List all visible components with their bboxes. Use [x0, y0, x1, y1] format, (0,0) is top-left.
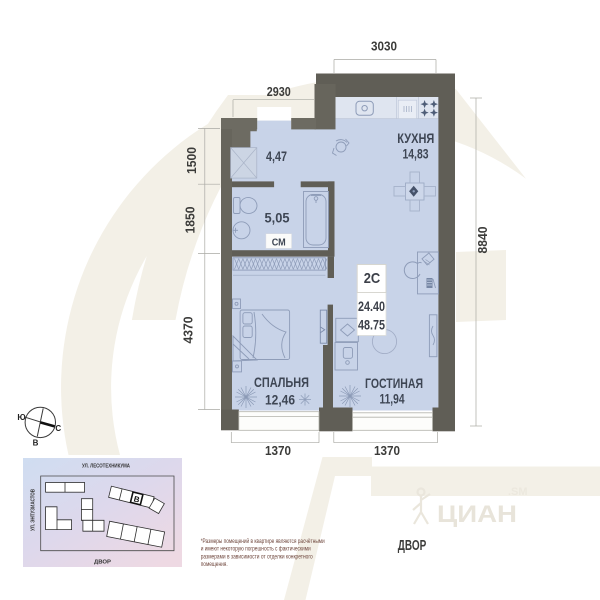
svg-text:1370: 1370: [374, 444, 400, 458]
svg-text:ЦИАН: ЦИАН: [437, 501, 517, 528]
svg-text:2С: 2С: [364, 270, 381, 287]
svg-text:2930: 2930: [267, 84, 291, 99]
svg-text:УЛ. ЭНТУЗИАСТОВ: УЛ. ЭНТУЗИАСТОВ: [31, 489, 37, 531]
svg-text:ДВОР: ДВОР: [398, 538, 427, 554]
svg-text:В: В: [33, 439, 39, 448]
svg-text:11,94: 11,94: [380, 391, 405, 407]
svg-text:КУХНЯ: КУХНЯ: [397, 130, 434, 146]
svg-text:ГОСТИНАЯ: ГОСТИНАЯ: [365, 375, 423, 391]
svg-text:*Размеры помещений в квартире: *Размеры помещений в квартире являются р…: [201, 537, 325, 545]
svg-text:8840: 8840: [475, 227, 490, 254]
svg-text:48.75: 48.75: [358, 317, 385, 333]
svg-text:Ю: Ю: [17, 413, 25, 422]
svg-text:24.40: 24.40: [358, 298, 385, 314]
svg-text:УЛ. ЛЕСОТЕХНИКУМА: УЛ. ЛЕСОТЕХНИКУМА: [82, 464, 130, 470]
svg-text:размерами в зависимости от отд: размерами в зависимости от отделки конкр…: [201, 553, 313, 560]
svg-text:помещения.: помещения.: [201, 561, 228, 568]
svg-text:1850: 1850: [183, 207, 198, 234]
svg-text:4370: 4370: [181, 317, 196, 344]
svg-text:СМ: СМ: [272, 238, 286, 249]
svg-text:3030: 3030: [371, 39, 397, 54]
svg-text:1500: 1500: [184, 147, 199, 174]
svg-text:12,46: 12,46: [265, 392, 295, 408]
svg-text:С: С: [55, 424, 61, 433]
svg-text:14,83: 14,83: [403, 146, 429, 162]
svg-text:4,47: 4,47: [266, 148, 287, 164]
svg-text:.SM: .SM: [508, 486, 528, 498]
svg-text:ДВОР: ДВОР: [94, 560, 111, 566]
svg-text:1370: 1370: [265, 444, 291, 458]
svg-text:СПАЛЬНЯ: СПАЛЬНЯ: [254, 374, 309, 390]
svg-text:5,05: 5,05: [265, 210, 290, 226]
svg-text:и имеют некоторую погрешность: и имеют некоторую погрешность с фактичес…: [201, 546, 311, 553]
